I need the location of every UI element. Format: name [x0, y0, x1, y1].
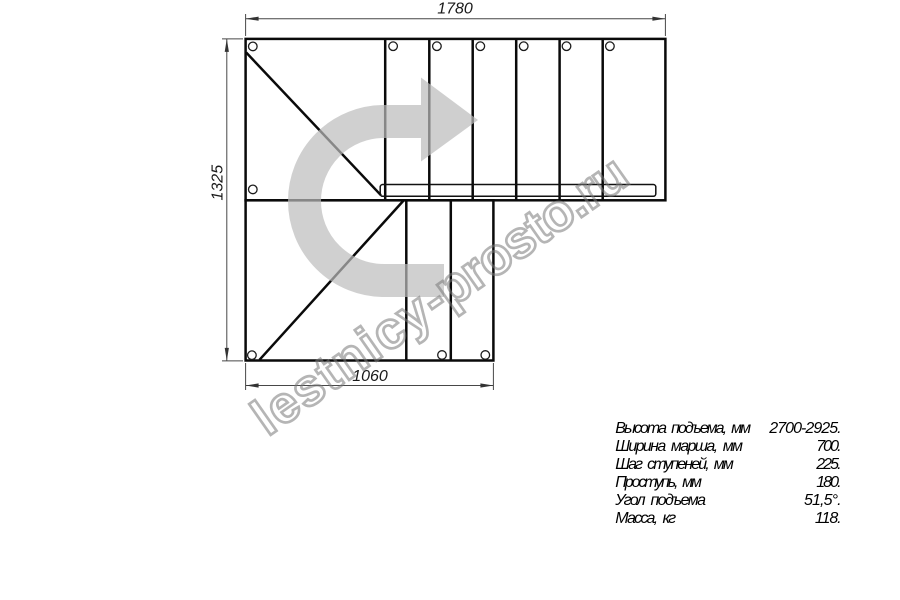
svg-text:Шаг ступеней, мм: Шаг ступеней, мм	[615, 456, 734, 473]
svg-text:1325: 1325	[210, 165, 227, 201]
svg-text:Высота подъема, мм: Высота подъема, мм	[615, 420, 751, 437]
svg-text:225.: 225.	[815, 456, 841, 473]
svg-text:118.: 118.	[815, 510, 842, 527]
svg-text:Проступь, мм: Проступь, мм	[615, 474, 702, 491]
svg-text:1780: 1780	[437, 1, 473, 18]
svg-text:2700-2925.: 2700-2925.	[768, 420, 841, 437]
svg-text:Угол подъема: Угол подъема	[614, 492, 706, 509]
svg-text:Ширина марша, мм: Ширина марша, мм	[615, 438, 743, 455]
svg-text:700.: 700.	[816, 438, 841, 455]
svg-text:51,5°.: 51,5°.	[804, 492, 842, 509]
svg-text:180.: 180.	[816, 474, 841, 491]
svg-text:Масса, кг: Масса, кг	[615, 510, 676, 527]
